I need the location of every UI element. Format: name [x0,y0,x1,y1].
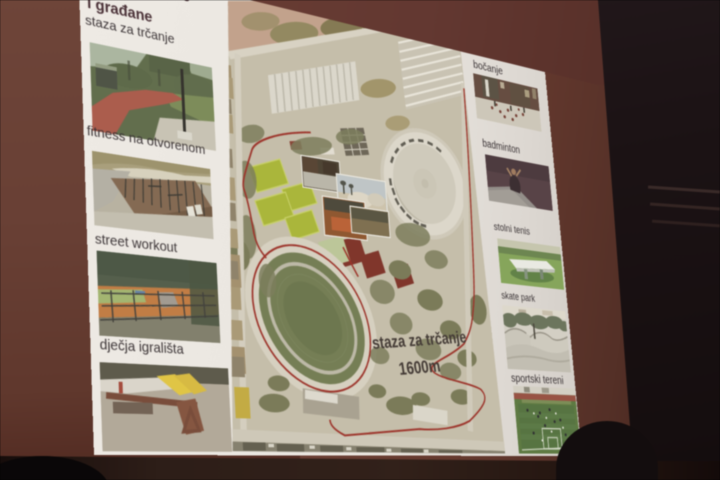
svg-text:1600m: 1600m [398,357,442,380]
